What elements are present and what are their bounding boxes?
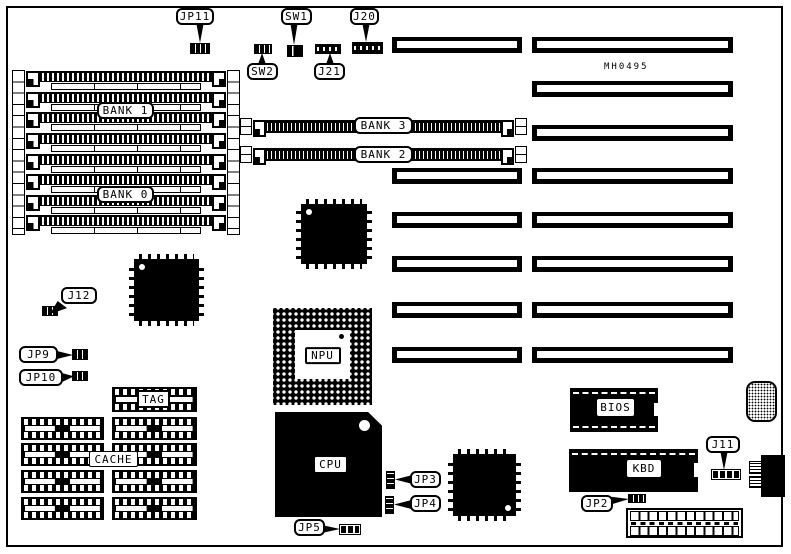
- callout-j11: J11: [706, 436, 740, 453]
- simm-rows: [25, 70, 227, 235]
- power-connector: [626, 508, 743, 538]
- label-bank3: BANK 3: [354, 117, 413, 134]
- simm-pin-stripe: [39, 154, 213, 165]
- simm-pin-stripe: [39, 133, 213, 144]
- isa-slot-segment: [532, 37, 733, 53]
- isa-slot-segment: [392, 37, 522, 53]
- simm-cap-left: [240, 118, 252, 135]
- callout-jp10: JP10: [19, 369, 63, 386]
- callout-jp3: JP3: [410, 471, 441, 488]
- simm-edge-tabs-right: [227, 70, 240, 235]
- simm-socket-body: [51, 166, 201, 173]
- callout-j12: J12: [61, 287, 97, 304]
- motherboard-diagram: MH0495 JP11 SW1 J20 SW2 J21 BANK 1 BANK …: [0, 0, 791, 554]
- label-tag: TAG: [137, 390, 170, 408]
- simm-socket-body: [51, 124, 201, 131]
- label-cpu: CPU: [314, 456, 347, 473]
- qfp-chip-3: [448, 449, 521, 521]
- label-bios: BIOS: [597, 399, 634, 416]
- isa-slot-segment: [532, 256, 733, 272]
- power-pin-divider: [631, 522, 738, 525]
- cache-socket: [21, 470, 104, 493]
- simm-socket-row: [25, 214, 227, 235]
- cache-socket: [21, 497, 104, 520]
- label-npu: NPU: [305, 347, 341, 364]
- simm-cap-right: [515, 118, 527, 135]
- isa-slot-segment: [392, 256, 522, 272]
- cache-socket: [112, 470, 197, 493]
- callout-sw2: SW2: [247, 63, 278, 80]
- isa-slot-segment: [392, 302, 522, 318]
- callout-jp4: JP4: [410, 495, 441, 512]
- jumper-jp2: [628, 494, 646, 503]
- callout-jp5: JP5: [294, 519, 325, 536]
- connector-j20: [352, 42, 383, 54]
- power-pin-row-top: [630, 511, 739, 521]
- simm-socket-body: [51, 145, 201, 152]
- simm-socket-body: [51, 227, 201, 234]
- simm-pin-stripe: [39, 71, 213, 82]
- isa-slot-segment: [392, 168, 522, 184]
- simm-pin-stripe: [39, 215, 213, 226]
- callout-j20: J20: [350, 8, 379, 25]
- simm-socket-body: [51, 207, 201, 214]
- simm-socket-row: [25, 132, 227, 153]
- keyboard-connector-pin: [749, 461, 762, 474]
- isa-slot-segment: [532, 168, 733, 184]
- jumper-jp4: [385, 496, 394, 514]
- crystal-oscillator: [746, 381, 777, 422]
- switch-sw2: [254, 44, 272, 54]
- simm-socket-body: [51, 83, 201, 90]
- isa-slot-segment: [532, 302, 733, 318]
- callout-sw1: SW1: [281, 8, 312, 25]
- jumper-jp3: [386, 471, 395, 489]
- jumper-jp10: [72, 371, 88, 381]
- isa-slot-segment: [392, 212, 522, 228]
- simm-socket-row: [25, 70, 227, 91]
- simm-edge-tabs-left: [12, 70, 25, 235]
- simm-pin-stripe: [39, 92, 213, 103]
- label-bank1: BANK 1: [97, 102, 154, 119]
- jumper-jp9: [72, 349, 88, 360]
- jumper-jp5: [339, 524, 361, 535]
- callout-jp2: JP2: [581, 495, 613, 512]
- keyboard-connector-pin: [749, 476, 762, 488]
- npu-socket: NPU: [273, 308, 372, 405]
- simm-bank-block: [12, 70, 240, 235]
- isa-slot-segment: [532, 81, 733, 97]
- simm-socket-row: [25, 153, 227, 174]
- cache-socket: [21, 417, 104, 440]
- callout-jp9: JP9: [19, 346, 58, 363]
- jumper-j11: [711, 469, 741, 480]
- connector-j21: [315, 44, 341, 54]
- switch-sw1: [287, 45, 303, 57]
- cache-socket: [112, 497, 197, 520]
- part-number-text: MH0495: [604, 62, 649, 72]
- chip-notch: [654, 403, 659, 416]
- label-bank2: BANK 2: [354, 146, 413, 163]
- simm-cap-right: [515, 146, 527, 163]
- simm-pin-stripe: [39, 174, 213, 185]
- npu-socket-center: NPU: [295, 330, 350, 379]
- simm-cap-left: [240, 146, 252, 163]
- isa-slot-segment: [532, 347, 733, 363]
- isa-slot-segment: [532, 212, 733, 228]
- qfp-chip-2: [129, 254, 204, 326]
- qfp-chip-1: [296, 199, 372, 269]
- chip-notch: [694, 463, 699, 477]
- power-pin-row-bottom: [630, 526, 739, 536]
- isa-slot-segment: [392, 347, 522, 363]
- callout-jp11: JP11: [176, 8, 214, 25]
- jumper-jp11: [190, 43, 210, 54]
- callout-j21: J21: [314, 63, 345, 80]
- label-cache: CACHE: [89, 451, 138, 467]
- label-bank0: BANK 0: [97, 186, 154, 203]
- keyboard-din-connector: [761, 455, 785, 497]
- cache-socket: [112, 417, 197, 440]
- isa-slot-segment: [532, 125, 733, 141]
- label-kbd: KBD: [627, 460, 661, 477]
